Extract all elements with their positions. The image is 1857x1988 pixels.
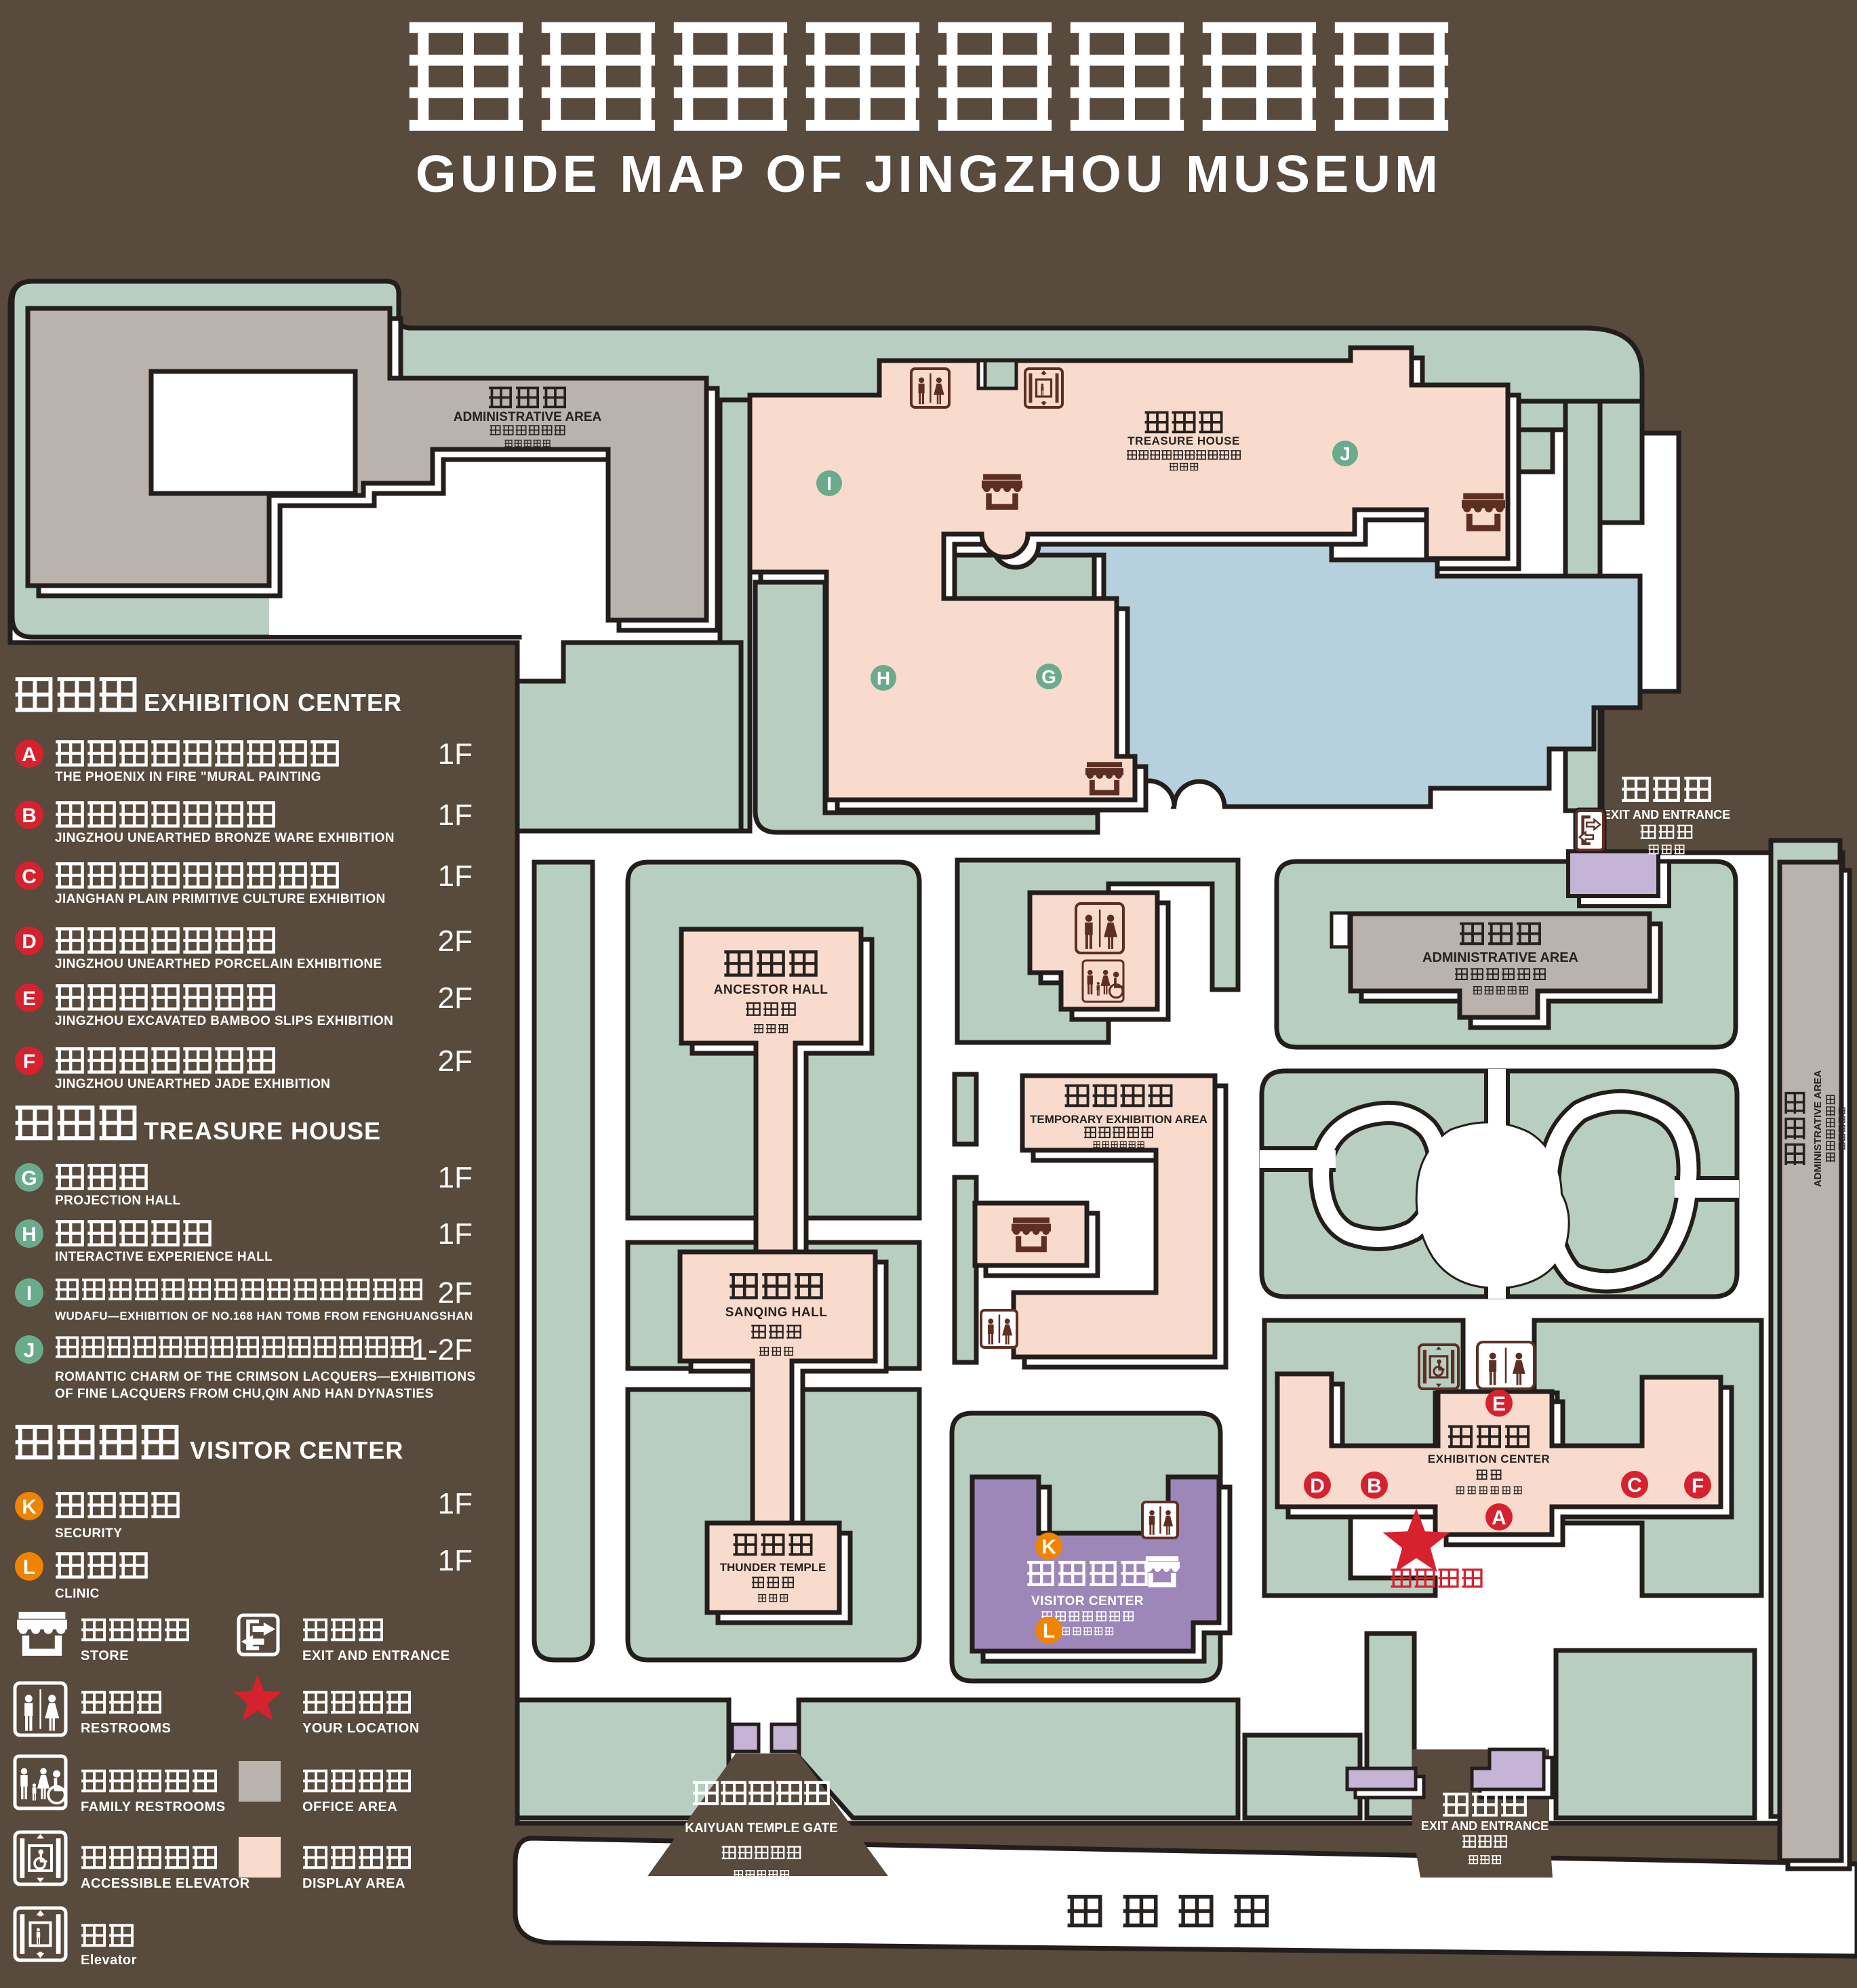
- svg-text:YOUR LOCATION: YOUR LOCATION: [302, 1721, 420, 1736]
- svg-text:JINGZHOU UNEARTHED BRONZE WARE: JINGZHOU UNEARTHED BRONZE WARE EXHIBITIO…: [55, 831, 395, 845]
- svg-text:GUIDE MAP OF JINGZHOU MUSEUM: GUIDE MAP OF JINGZHOU MUSEUM: [416, 145, 1442, 203]
- svg-text:KAIYUAN TEMPLE GATE: KAIYUAN TEMPLE GATE: [685, 1821, 838, 1835]
- svg-text:EXIT AND ENTRANCE: EXIT AND ENTRANCE: [1421, 1819, 1549, 1833]
- svg-text:1F: 1F: [438, 798, 473, 832]
- svg-text:RESTROOMS: RESTROOMS: [81, 1721, 171, 1736]
- svg-text:E: E: [22, 988, 36, 1010]
- svg-text:CLINIC: CLINIC: [55, 1587, 100, 1601]
- svg-text:OF FINE LACQUERS FROM CHU,QIN: OF FINE LACQUERS FROM CHU,QIN AND HAN DY…: [55, 1387, 434, 1401]
- svg-text:THUNDER TEMPLE: THUNDER TEMPLE: [720, 1561, 826, 1574]
- svg-text:INTERACTIVE EXPERIENCE HALL: INTERACTIVE EXPERIENCE HALL: [55, 1250, 273, 1264]
- svg-text:EXIT AND ENTRANCE: EXIT AND ENTRANCE: [1603, 808, 1730, 821]
- svg-text:I: I: [26, 1282, 32, 1305]
- svg-text:JINGZHOU UNEARTHED JADE EXHIBI: JINGZHOU UNEARTHED JADE EXHIBITION: [55, 1077, 330, 1091]
- svg-text:H: H: [22, 1223, 37, 1246]
- svg-text:1F: 1F: [438, 1544, 473, 1577]
- svg-text:G: G: [1041, 666, 1056, 687]
- svg-text:1-2F: 1-2F: [412, 1333, 473, 1366]
- svg-text:EXIT AND ENTRANCE: EXIT AND ENTRANCE: [302, 1648, 450, 1663]
- svg-text:TREASURE HOUSE: TREASURE HOUSE: [1127, 434, 1240, 447]
- svg-text:ADMINISTRATIVE AREA: ADMINISTRATIVE AREA: [454, 410, 602, 424]
- svg-text:D: D: [22, 931, 37, 953]
- svg-text:ADMINISTRATIVE AREA: ADMINISTRATIVE AREA: [1812, 1070, 1824, 1188]
- svg-text:K: K: [22, 1496, 37, 1518]
- svg-text:D: D: [1310, 1475, 1325, 1497]
- svg-text:ADMINISTRATIVE AREA: ADMINISTRATIVE AREA: [1422, 950, 1578, 965]
- svg-text:E: E: [1492, 1393, 1506, 1415]
- svg-text:PROJECTION HALL: PROJECTION HALL: [55, 1194, 180, 1208]
- svg-text:B: B: [22, 805, 37, 827]
- svg-text:JINGZHOU UNEARTHED PORCELAIN E: JINGZHOU UNEARTHED PORCELAIN EXHIBITIONE: [55, 957, 382, 971]
- svg-text:J: J: [1340, 443, 1351, 464]
- svg-text:JINGZHOU EXCAVATED BAMBOO SLIP: JINGZHOU EXCAVATED BAMBOO SLIPS EXHIBITI…: [55, 1014, 393, 1028]
- svg-text:1F: 1F: [438, 1487, 473, 1520]
- svg-text:JIANGHAN PLAIN PRIMITIVE CULTU: JIANGHAN PLAIN PRIMITIVE CULTURE EXHIBIT…: [55, 892, 386, 906]
- svg-text:L: L: [1043, 1620, 1055, 1642]
- svg-text:C: C: [1627, 1474, 1642, 1497]
- svg-text:SANQING HALL: SANQING HALL: [725, 1305, 828, 1320]
- svg-text:SECURITY: SECURITY: [55, 1526, 122, 1541]
- svg-text:WUDAFU—EXHIBITION OF NO.168 HA: WUDAFU—EXHIBITION OF NO.168 HAN TOMB FRO…: [55, 1310, 473, 1322]
- svg-text:2F: 2F: [438, 925, 473, 958]
- svg-text:VISITOR CENTER: VISITOR CENTER: [190, 1436, 403, 1464]
- svg-text:TREASURE HOUSE: TREASURE HOUSE: [144, 1117, 381, 1145]
- svg-text:VISITOR CENTER: VISITOR CENTER: [1031, 1594, 1144, 1608]
- svg-text:A: A: [22, 744, 37, 766]
- svg-text:1F: 1F: [438, 737, 473, 771]
- svg-text:I: I: [826, 473, 832, 494]
- svg-text:FAMILY RESTROOMS: FAMILY RESTROOMS: [81, 1800, 226, 1814]
- svg-text:STORE: STORE: [81, 1648, 129, 1663]
- svg-text:F: F: [23, 1051, 35, 1073]
- svg-text:2F: 2F: [438, 981, 473, 1015]
- svg-text:1F: 1F: [438, 1161, 473, 1194]
- svg-text:K: K: [1041, 1536, 1056, 1558]
- svg-text:EXHIBITION CENTER: EXHIBITION CENTER: [144, 689, 402, 716]
- svg-text:J: J: [24, 1339, 35, 1362]
- svg-text:Elevator: Elevator: [81, 1953, 137, 1968]
- svg-text:ANCESTOR HALL: ANCESTOR HALL: [714, 983, 828, 997]
- svg-text:L: L: [23, 1556, 35, 1579]
- svg-text:2F: 2F: [438, 1276, 473, 1310]
- svg-text:2F: 2F: [438, 1044, 473, 1078]
- svg-text:1F: 1F: [438, 859, 473, 893]
- svg-text:ROMANTIC CHARM OF THE CRIMSON: ROMANTIC CHARM OF THE CRIMSON LACQUERS—E…: [55, 1370, 476, 1384]
- svg-text:B: B: [1367, 1475, 1382, 1497]
- svg-text:EXHIBITION CENTER: EXHIBITION CENTER: [1428, 1453, 1550, 1465]
- svg-text:G: G: [21, 1167, 37, 1190]
- svg-text:ACCESSIBLE ELEVATOR: ACCESSIBLE ELEVATOR: [81, 1876, 250, 1891]
- svg-text:H: H: [877, 668, 890, 689]
- svg-text:TEMPORARY EXHIBITION AREA: TEMPORARY EXHIBITION AREA: [1030, 1113, 1207, 1126]
- svg-text:1F: 1F: [438, 1217, 473, 1251]
- svg-text:THE PHOENIX IN FIRE "MURAL PAI: THE PHOENIX IN FIRE "MURAL PAINTING: [55, 770, 321, 784]
- svg-text:DISPLAY AREA: DISPLAY AREA: [302, 1876, 405, 1891]
- svg-text:C: C: [22, 866, 37, 888]
- svg-text:F: F: [1692, 1475, 1704, 1497]
- svg-text:OFFICE AREA: OFFICE AREA: [302, 1800, 397, 1814]
- svg-text:A: A: [1492, 1507, 1506, 1529]
